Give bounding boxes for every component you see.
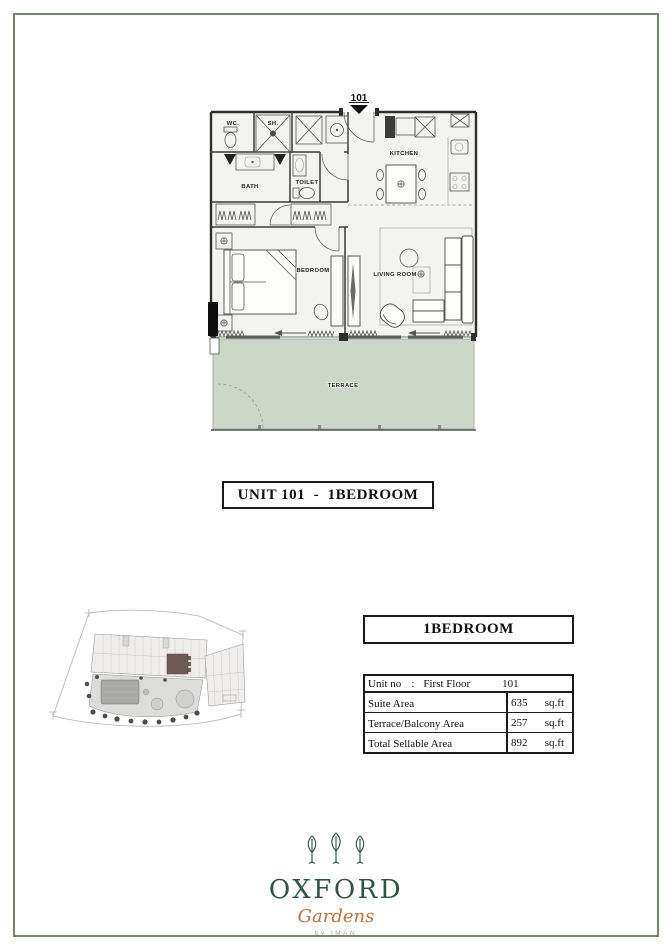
shower-label: SH. <box>268 121 279 127</box>
table-row: Terrace/Balcony Area 257 sq.ft <box>365 713 572 733</box>
header-floor: First Floor <box>423 678 470 690</box>
row-value: 892 <box>511 737 528 749</box>
row-unit: sq.ft <box>545 697 564 709</box>
living-room-label: LIVING ROOM <box>373 272 416 278</box>
terrace-area: TERRACE <box>211 339 476 430</box>
logo-trees-icon <box>294 830 378 868</box>
annex-block <box>205 644 245 706</box>
logo-script-name: Gardens <box>0 906 672 927</box>
toilet-label: TOILET <box>296 180 319 186</box>
table-row: Suite Area 635 sq.ft <box>365 693 572 713</box>
unit-area-table: Unit no : First Floor 101 Suite Area 635… <box>363 674 574 754</box>
key-plan <box>45 600 255 740</box>
row-unit: sq.ft <box>545 737 564 749</box>
bedroom-label: BEDROOM <box>296 268 329 274</box>
floor-plan: TERRACE 101 WC. SH. <box>208 88 478 436</box>
header-unit-number: 101 <box>502 678 519 690</box>
brochure-page: TERRACE 101 WC. SH. <box>0 0 672 950</box>
row-value: 635 <box>511 697 528 709</box>
row-value: 257 <box>511 717 528 729</box>
header-unit-no: Unit no <box>368 678 401 690</box>
table-header-row: Unit no : First Floor 101 <box>365 676 572 693</box>
bath-label: BATH <box>241 184 258 190</box>
bed <box>224 250 296 314</box>
unit-type-box: 1BEDROOM <box>363 615 574 644</box>
bedroom-cabinet <box>331 256 343 326</box>
header-colon: : <box>411 678 414 690</box>
highlighted-unit <box>167 654 191 674</box>
row-label: Total Sellable Area <box>365 733 508 752</box>
unit-title-box: UNIT 101 - 1BEDROOM <box>222 481 434 509</box>
column <box>208 302 218 336</box>
row-label: Suite Area <box>365 693 508 712</box>
unit-marker: 101 <box>349 93 369 114</box>
table-row: Total Sellable Area 892 sq.ft <box>365 733 572 752</box>
wc-label: WC. <box>227 121 239 127</box>
row-unit: sq.ft <box>545 717 564 729</box>
logo-byline: by IMAN <box>0 930 672 937</box>
kitchen-label: KITCHEN <box>390 151 419 157</box>
unit-type-title: 1BEDROOM <box>423 621 514 638</box>
unit-title: UNIT 101 - 1BEDROOM <box>238 487 419 504</box>
logo-wordmark: OXFORD <box>0 875 672 905</box>
terrace-label: TERRACE <box>328 383 359 389</box>
logo: OXFORD Gardens by IMAN <box>0 830 672 937</box>
courtyard <box>89 674 203 717</box>
row-label: Terrace/Balcony Area <box>365 713 508 732</box>
